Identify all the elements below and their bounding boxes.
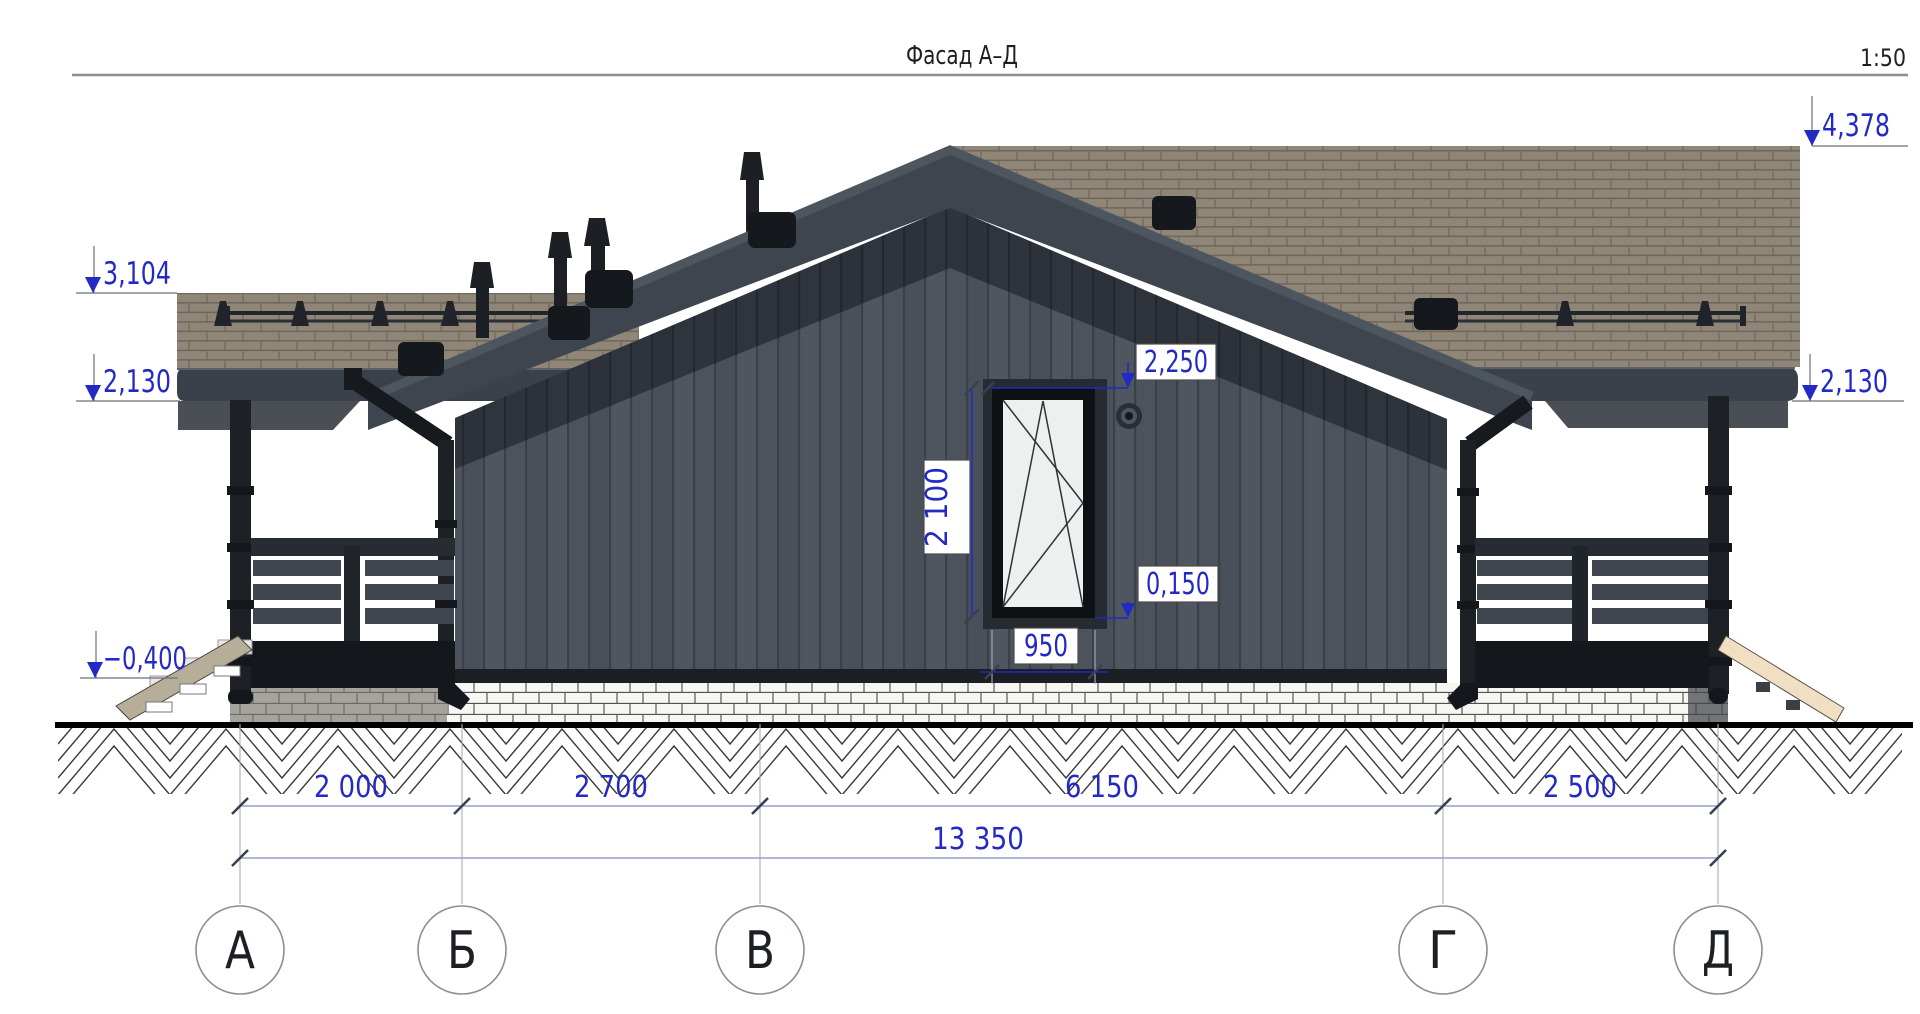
dim-span-v-g: 6 150 bbox=[1065, 770, 1139, 805]
right-railing bbox=[1475, 538, 1709, 688]
right-roof-soffit bbox=[1545, 401, 1788, 428]
elevation-mark-2130-right: 2,130 bbox=[1792, 354, 1904, 401]
axis-bubbles: А Б В Г Д bbox=[196, 906, 1762, 994]
left-roof-soffit bbox=[178, 401, 360, 430]
dim-span-a-b: 2 000 bbox=[314, 770, 388, 805]
right-terrace bbox=[1447, 396, 1732, 710]
axis-label-a: А bbox=[225, 921, 255, 981]
window-glass bbox=[1003, 400, 1083, 607]
ground-line bbox=[55, 722, 1913, 728]
elevation-2130-right-value: 2,130 bbox=[1820, 364, 1888, 400]
axis-label-b: Б bbox=[447, 921, 477, 981]
left-railing-panel bbox=[251, 641, 455, 688]
axis-label-g: Г bbox=[1428, 921, 1458, 981]
right-stairs bbox=[1718, 636, 1844, 722]
axis-label-v: В bbox=[745, 921, 775, 981]
elevation-4378-value: 4,378 bbox=[1822, 108, 1890, 144]
window-width-value: 950 bbox=[1024, 629, 1068, 664]
facade-drawing: Фасад А–Д 1:50 bbox=[0, 0, 1920, 1014]
right-railing-panel bbox=[1475, 641, 1709, 688]
right-stair-stringer bbox=[1718, 636, 1844, 722]
dimension-row-total: 13 350 bbox=[232, 822, 1726, 866]
window-sill-value: 0,150 bbox=[1146, 567, 1210, 602]
elevation-2130-left-value: 2,130 bbox=[103, 364, 171, 400]
wall-base-shadow bbox=[455, 669, 1447, 683]
right-downpipe bbox=[1460, 440, 1476, 686]
dim-total: 13 350 bbox=[932, 822, 1024, 857]
elevation-mark-minus0400: −0,400 bbox=[80, 631, 187, 678]
facade-drawing-sheet: Фасад А–Д 1:50 bbox=[0, 0, 1920, 1014]
dim-span-g-d: 2 500 bbox=[1543, 770, 1617, 805]
sheet-title: Фасад А–Д bbox=[906, 41, 1018, 71]
wall-vent-cap bbox=[1116, 403, 1142, 429]
plinth-white-brick bbox=[447, 683, 1728, 727]
elevation-mark-2130-left: 2,130 bbox=[76, 354, 180, 401]
sheet-scale: 1:50 bbox=[1860, 44, 1906, 72]
window-head-value: 2,250 bbox=[1144, 345, 1208, 380]
elevation-3104-value: 3,104 bbox=[103, 256, 171, 292]
elevation-mark-3104: 3,104 bbox=[76, 246, 177, 293]
elevation-mark-4378: 4,378 bbox=[1804, 96, 1908, 146]
dim-span-b-v: 2 700 bbox=[574, 770, 648, 805]
axis-extension-lines bbox=[240, 724, 1718, 904]
plinth-gray-brick bbox=[230, 683, 447, 727]
left-railing bbox=[251, 538, 455, 688]
window-height-value: 2 100 bbox=[920, 467, 955, 547]
dimension-row-spans: 2 000 2 700 6 150 2 500 bbox=[232, 770, 1726, 814]
axis-label-d: Д bbox=[1702, 921, 1734, 981]
elevation-minus0400-value: −0,400 bbox=[103, 641, 187, 677]
